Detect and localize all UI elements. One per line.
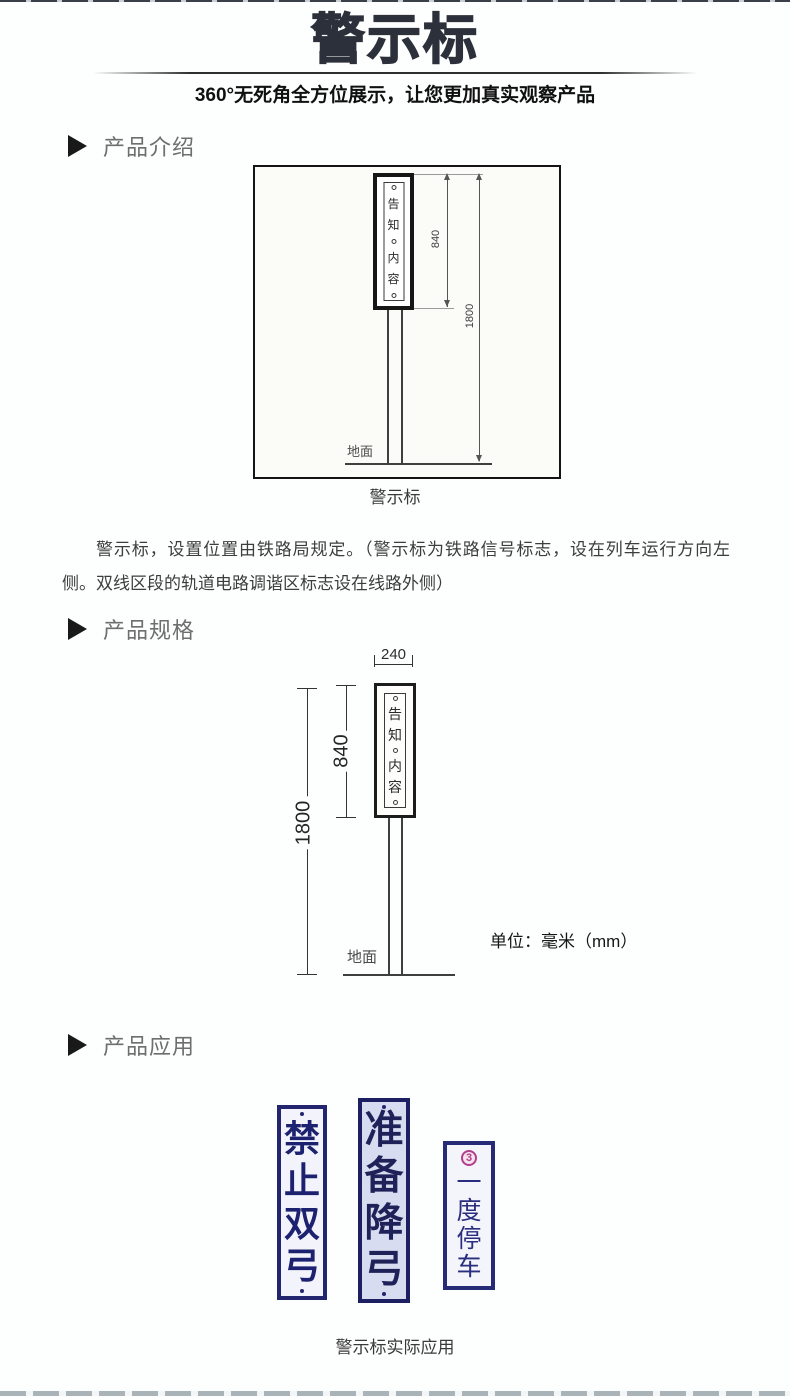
page-subtitle: 360°无死角全方位展示，让您更加真实观察产品	[0, 80, 790, 107]
title-divider	[93, 72, 697, 74]
arrow-down-icon	[444, 300, 450, 307]
notice-char: 内	[388, 759, 402, 773]
sign-text: 准 备 降 弓	[364, 1108, 403, 1292]
sign-text: 一 度 停 车	[456, 1169, 481, 1281]
dimension-value-1800: 1800	[464, 301, 476, 331]
intro-technical-drawing: 告 知 内 容 地面 840 1800	[253, 165, 561, 479]
section-label: 产品应用	[103, 1029, 195, 1061]
section-header-intro: 产品介绍	[68, 130, 195, 162]
ground-label: 地面	[347, 946, 377, 967]
notice-sign-drawing: 告 知 内 容	[373, 173, 414, 310]
sign-char: 双	[284, 1203, 320, 1245]
page-title: 警示标	[0, 12, 790, 68]
notice-sign-inner-panel: 告 知 内 容	[383, 182, 404, 301]
triangle-bullet-icon	[68, 1034, 87, 1056]
notice-char: 内	[387, 252, 399, 264]
dimension-line-840	[447, 176, 448, 307]
bolt-hole-icon	[391, 239, 396, 244]
sign-char: 停	[456, 1225, 481, 1253]
dimension-tick	[297, 974, 317, 975]
sign-pole-line	[387, 310, 389, 463]
sign-pole-line	[401, 818, 403, 975]
extension-line	[414, 308, 454, 309]
intro-paragraph: 警示标，设置位置由铁路局规定。（警示标为铁路信号标志，设在列车运行方向左侧。双线…	[62, 533, 730, 601]
sign-text: 禁 止 双 弓	[284, 1118, 320, 1288]
sign-char: 车	[456, 1253, 481, 1281]
dimension-tick	[336, 685, 356, 686]
ground-label: 地面	[347, 441, 373, 460]
bolt-dot-icon	[300, 1112, 304, 1116]
dimension-value-1800: 1800	[293, 797, 316, 850]
notice-char: 容	[387, 273, 399, 285]
seal-emblem-icon: 3	[461, 1150, 477, 1166]
sign-photo-jinzhishuanggong: 禁 止 双 弓	[277, 1105, 327, 1300]
sign-char: 弓	[364, 1247, 403, 1293]
bolt-hole-icon	[393, 800, 398, 805]
dimension-tick	[297, 688, 317, 689]
bolt-dot-icon	[382, 1292, 386, 1296]
notice-sign-drawing: 告 知 内 容	[374, 683, 416, 818]
dimension-value-240: 240	[374, 646, 413, 663]
notice-char: 告	[388, 707, 402, 721]
bolt-hole-icon	[393, 696, 398, 701]
ground-line	[343, 974, 455, 976]
bolt-hole-icon	[393, 748, 398, 753]
dimension-tick	[412, 655, 413, 667]
arrow-down-icon	[476, 455, 482, 462]
product-detail-page: 警示标 360°无死角全方位展示，让您更加真实观察产品 产品介绍 告 知 内 容…	[0, 0, 790, 1398]
section-header-apps: 产品应用	[68, 1029, 195, 1061]
section-header-specs: 产品规格	[68, 613, 195, 645]
sign-char: 止	[284, 1160, 320, 1202]
top-border-line	[0, 0, 790, 2]
bottom-border-line	[0, 1391, 790, 1396]
ground-line	[345, 463, 492, 465]
sign-char: 弓	[284, 1245, 320, 1287]
notice-char: 容	[388, 780, 402, 794]
unit-note: 单位：毫米（mm）	[490, 927, 637, 952]
dimension-value-840: 840	[331, 730, 354, 771]
intro-drawing-caption: 警示标	[0, 483, 790, 508]
dimension-tick	[374, 655, 375, 667]
bolt-hole-icon	[391, 185, 396, 190]
arrow-up-icon	[444, 173, 450, 180]
dimension-line-240	[374, 664, 413, 665]
sign-char: 禁	[284, 1118, 320, 1160]
triangle-bullet-icon	[68, 135, 87, 157]
notice-char: 知	[388, 728, 402, 742]
bolt-dot-icon	[300, 1289, 304, 1293]
sign-photo-zhunbeijianggong: 准 备 降 弓	[358, 1098, 410, 1303]
section-label: 产品规格	[103, 613, 195, 645]
applications-caption: 警示标实际应用	[0, 1333, 790, 1358]
section-label: 产品介绍	[103, 130, 195, 162]
sign-char: 一	[456, 1169, 481, 1197]
sign-pole-line	[401, 310, 403, 463]
sign-char: 备	[364, 1154, 403, 1200]
bolt-hole-icon	[391, 293, 396, 298]
sign-char: 度	[456, 1197, 481, 1225]
dimension-line-1800	[479, 176, 480, 461]
notice-char: 告	[387, 198, 399, 210]
sign-photo-yidutingche: 3 一 度 停 车	[443, 1141, 495, 1290]
notice-sign-inner-panel: 告 知 内 容	[384, 693, 406, 808]
sign-pole-line	[388, 818, 390, 975]
bolt-dot-icon	[382, 1105, 386, 1109]
arrow-up-icon	[476, 173, 482, 180]
dimension-value-840: 840	[430, 227, 442, 251]
dimension-tick	[336, 817, 356, 818]
sign-char: 准	[364, 1108, 403, 1154]
triangle-bullet-icon	[68, 618, 87, 640]
sign-char: 降	[364, 1201, 403, 1247]
notice-char: 知	[387, 219, 399, 231]
